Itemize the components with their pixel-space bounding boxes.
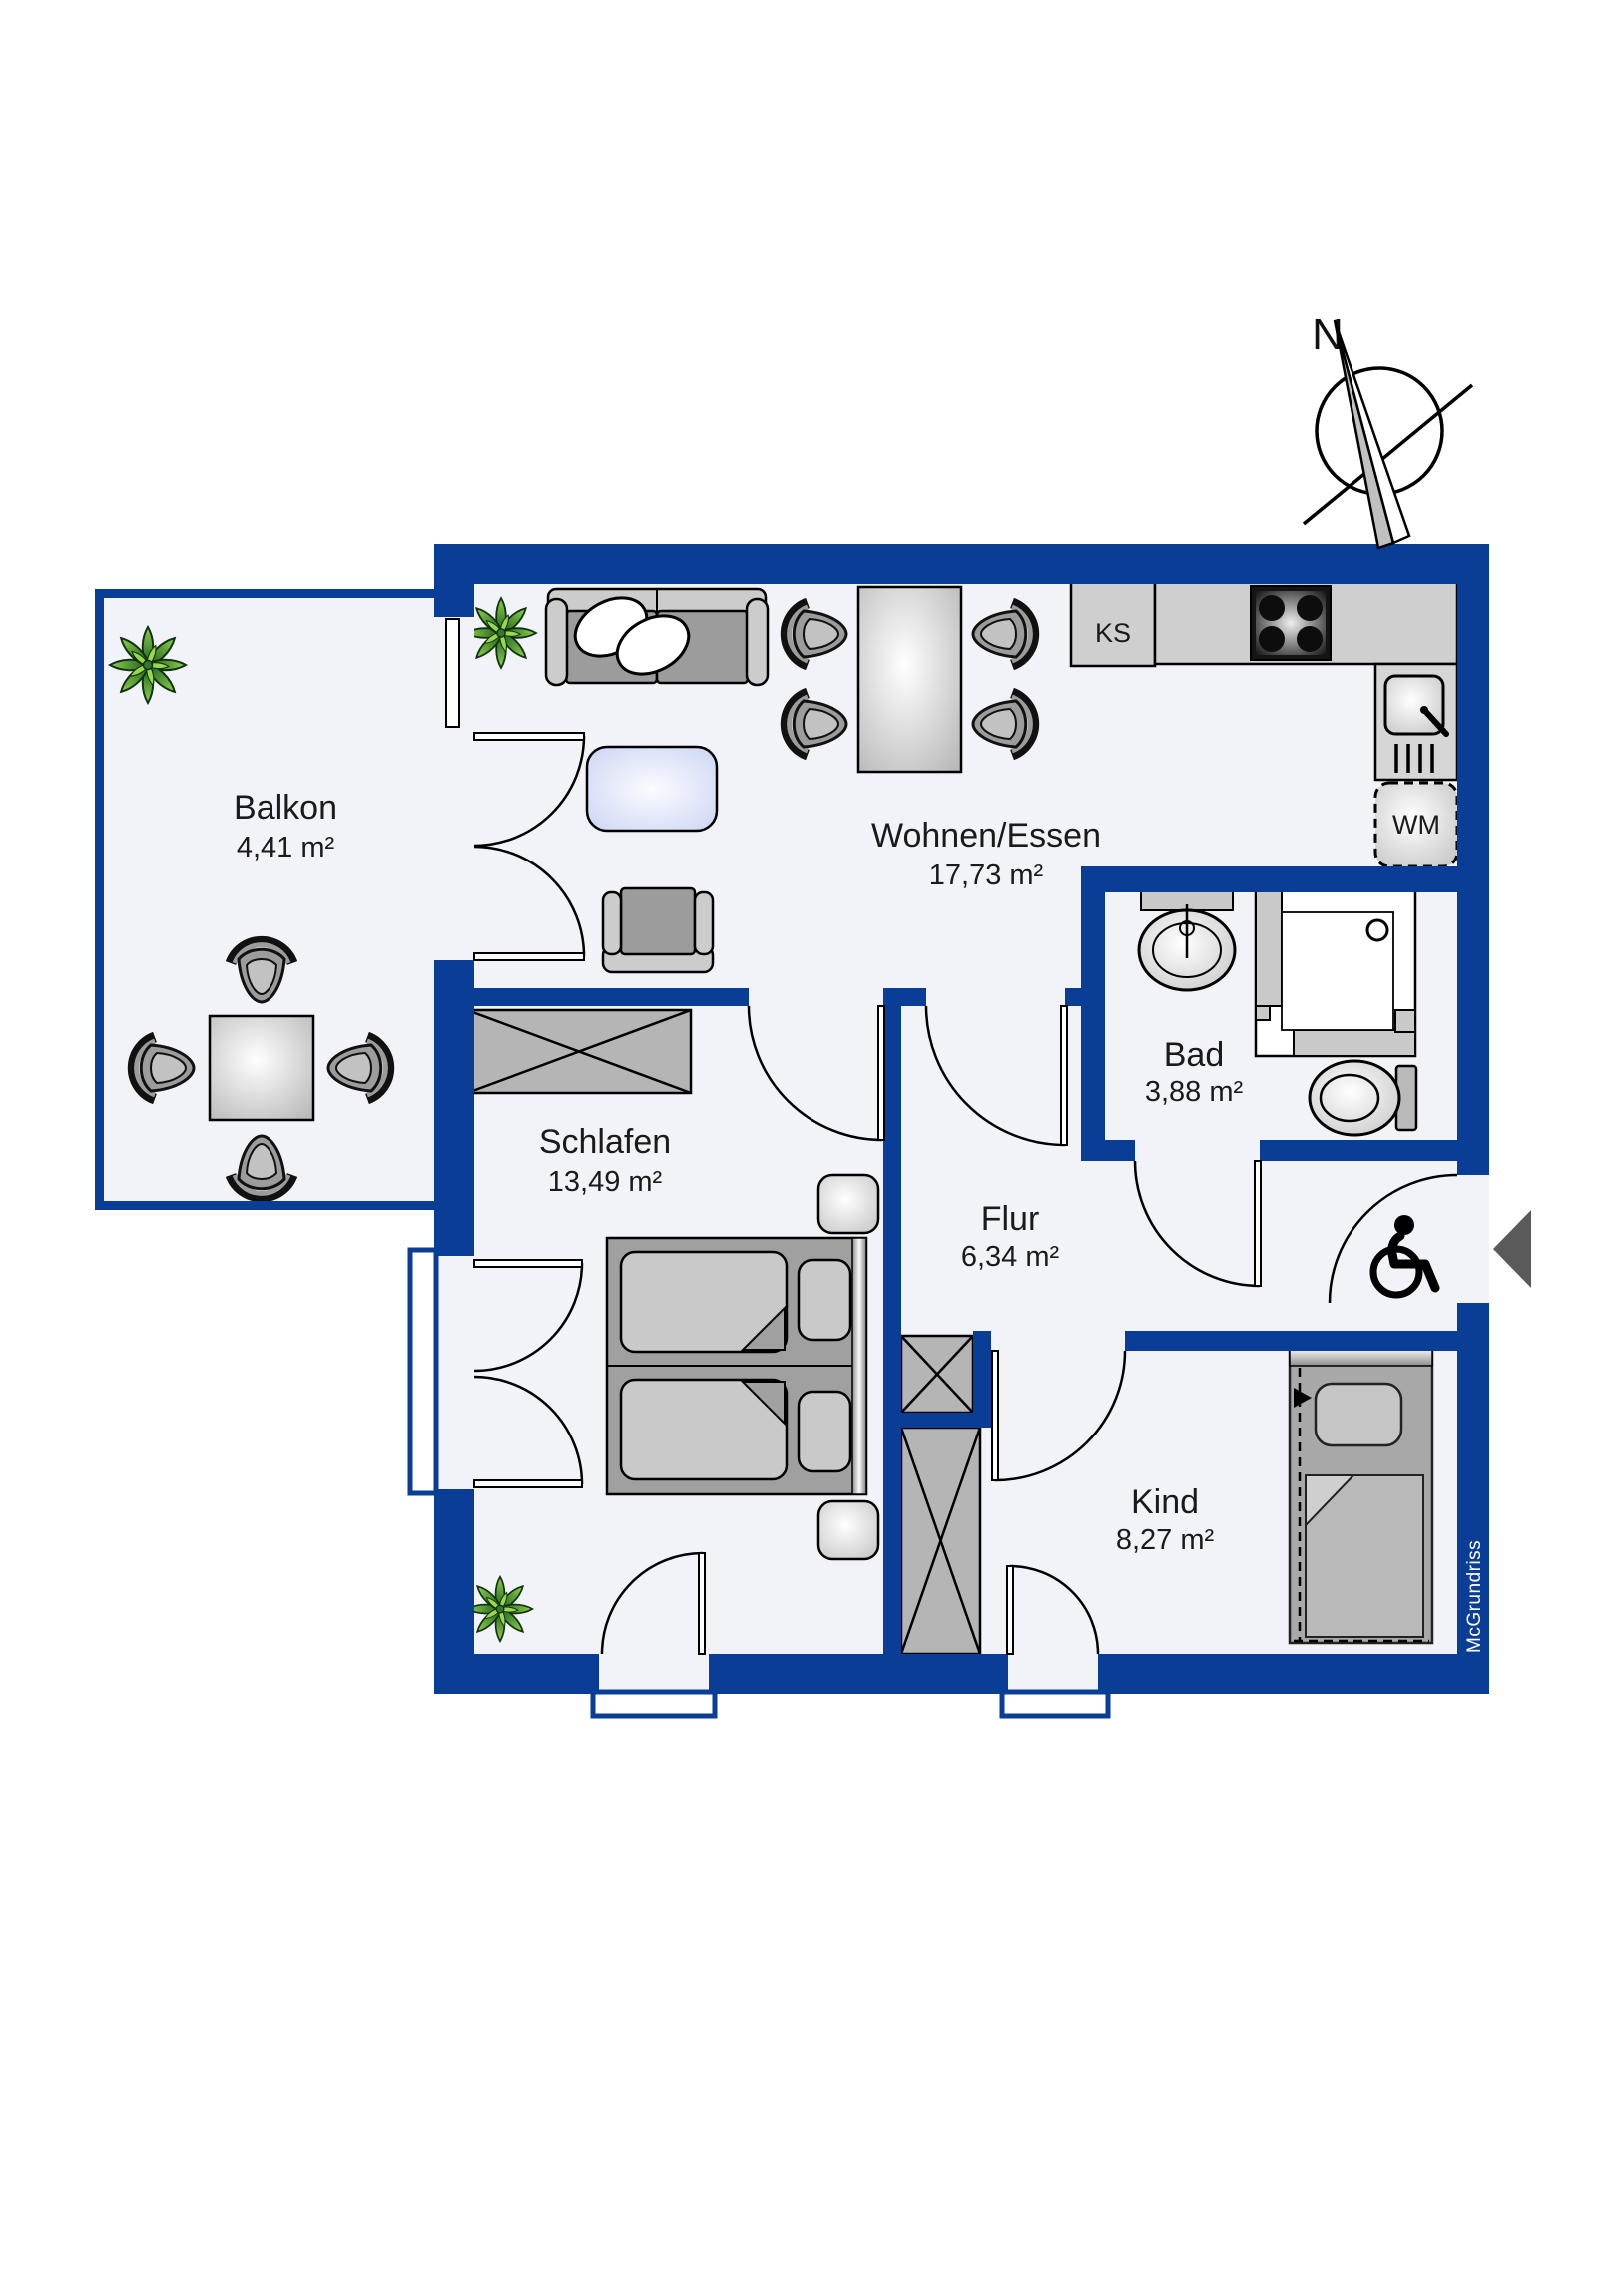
nightstand — [818, 1501, 878, 1559]
washing-machine: WM — [1375, 783, 1457, 866]
room-area-wohnen: 17,73 m² — [929, 860, 1044, 891]
wall-bedroom-hall — [883, 988, 901, 1654]
plant-icon — [468, 1577, 533, 1642]
brand-watermark: McGrundriss — [1464, 1540, 1485, 1653]
french-window-frame — [593, 1692, 715, 1716]
wall-exterior-top — [434, 544, 1489, 584]
armchair — [603, 888, 713, 972]
shower — [1256, 888, 1415, 1056]
hall-closet — [901, 1336, 973, 1413]
plant-icon — [110, 627, 186, 703]
nightstand — [818, 1175, 878, 1233]
french-door-frame — [410, 1250, 436, 1493]
wall-exterior-bottom — [434, 1654, 599, 1694]
washing-machine-label: WM — [1392, 810, 1440, 840]
child-bed — [1290, 1348, 1432, 1643]
kitchen-sink — [1375, 664, 1457, 780]
wall-bath-top — [1081, 866, 1457, 892]
room-area-kind: 8,27 m² — [1116, 1524, 1215, 1556]
fridge-label: KS — [1095, 618, 1131, 648]
wall-exterior-bottom — [1098, 1654, 1489, 1694]
french-window-frame — [1002, 1692, 1108, 1716]
stove — [1251, 586, 1331, 660]
sofa — [546, 586, 768, 686]
floorplan-drawing: KS WM — [0, 0, 1623, 2296]
room-label-flur: Flur — [981, 1200, 1040, 1238]
wall-child-top — [1125, 1331, 1457, 1351]
plant-icon — [466, 598, 536, 668]
room-label-schlafen: Schlafen — [539, 1123, 671, 1161]
wall-bath-left — [1081, 866, 1105, 1161]
double-bed — [607, 1238, 866, 1494]
entrance-arrow-icon — [1493, 1210, 1531, 1288]
wall-exterior-left — [434, 1489, 474, 1654]
room-label-balkon: Balkon — [234, 789, 337, 827]
wall-balcony-top — [95, 589, 438, 598]
toilet — [1310, 1061, 1416, 1135]
wall-exterior-right — [1457, 544, 1489, 1175]
pillow — [799, 1260, 850, 1340]
wall-bath-bottom — [1260, 1140, 1457, 1161]
coffee-table — [587, 747, 717, 831]
wall-balcony-bottom — [95, 1201, 457, 1210]
shower-head-icon — [1367, 920, 1387, 940]
floorplan-page: KS WM — [0, 0, 1623, 2296]
balcony-table — [210, 1016, 313, 1120]
pillow — [1316, 1384, 1401, 1445]
wall-hall-top — [1065, 988, 1081, 1006]
wall-bath-bottom — [1081, 1140, 1135, 1161]
room-area-bad: 3,88 m² — [1145, 1076, 1244, 1108]
room-area-balkon: 4,41 m² — [237, 832, 335, 863]
wall-closet-bottom — [901, 1413, 991, 1428]
wall-balcony-left — [95, 589, 104, 1210]
balcony-window — [434, 617, 474, 729]
child-wardrobe — [901, 1428, 980, 1654]
compass: N — [1304, 310, 1472, 548]
room-area-flur: 6,34 m² — [961, 1241, 1060, 1273]
wardrobe — [467, 1010, 691, 1093]
wall-bedroom-top — [474, 988, 749, 1006]
room-label-wohnen: Wohnen/Essen — [871, 817, 1101, 855]
wall-exterior-left — [434, 544, 474, 617]
bath-sink — [1139, 888, 1235, 990]
wall-exterior-left — [434, 960, 474, 1256]
dining-table — [858, 587, 961, 772]
pillow — [799, 1392, 850, 1471]
room-label-bad: Bad — [1164, 1036, 1225, 1074]
room-area-schlafen: 13,49 m² — [548, 1166, 663, 1198]
wall-exterior-bottom — [709, 1654, 1008, 1694]
room-label-kind: Kind — [1131, 1483, 1199, 1521]
headboard — [852, 1238, 866, 1494]
